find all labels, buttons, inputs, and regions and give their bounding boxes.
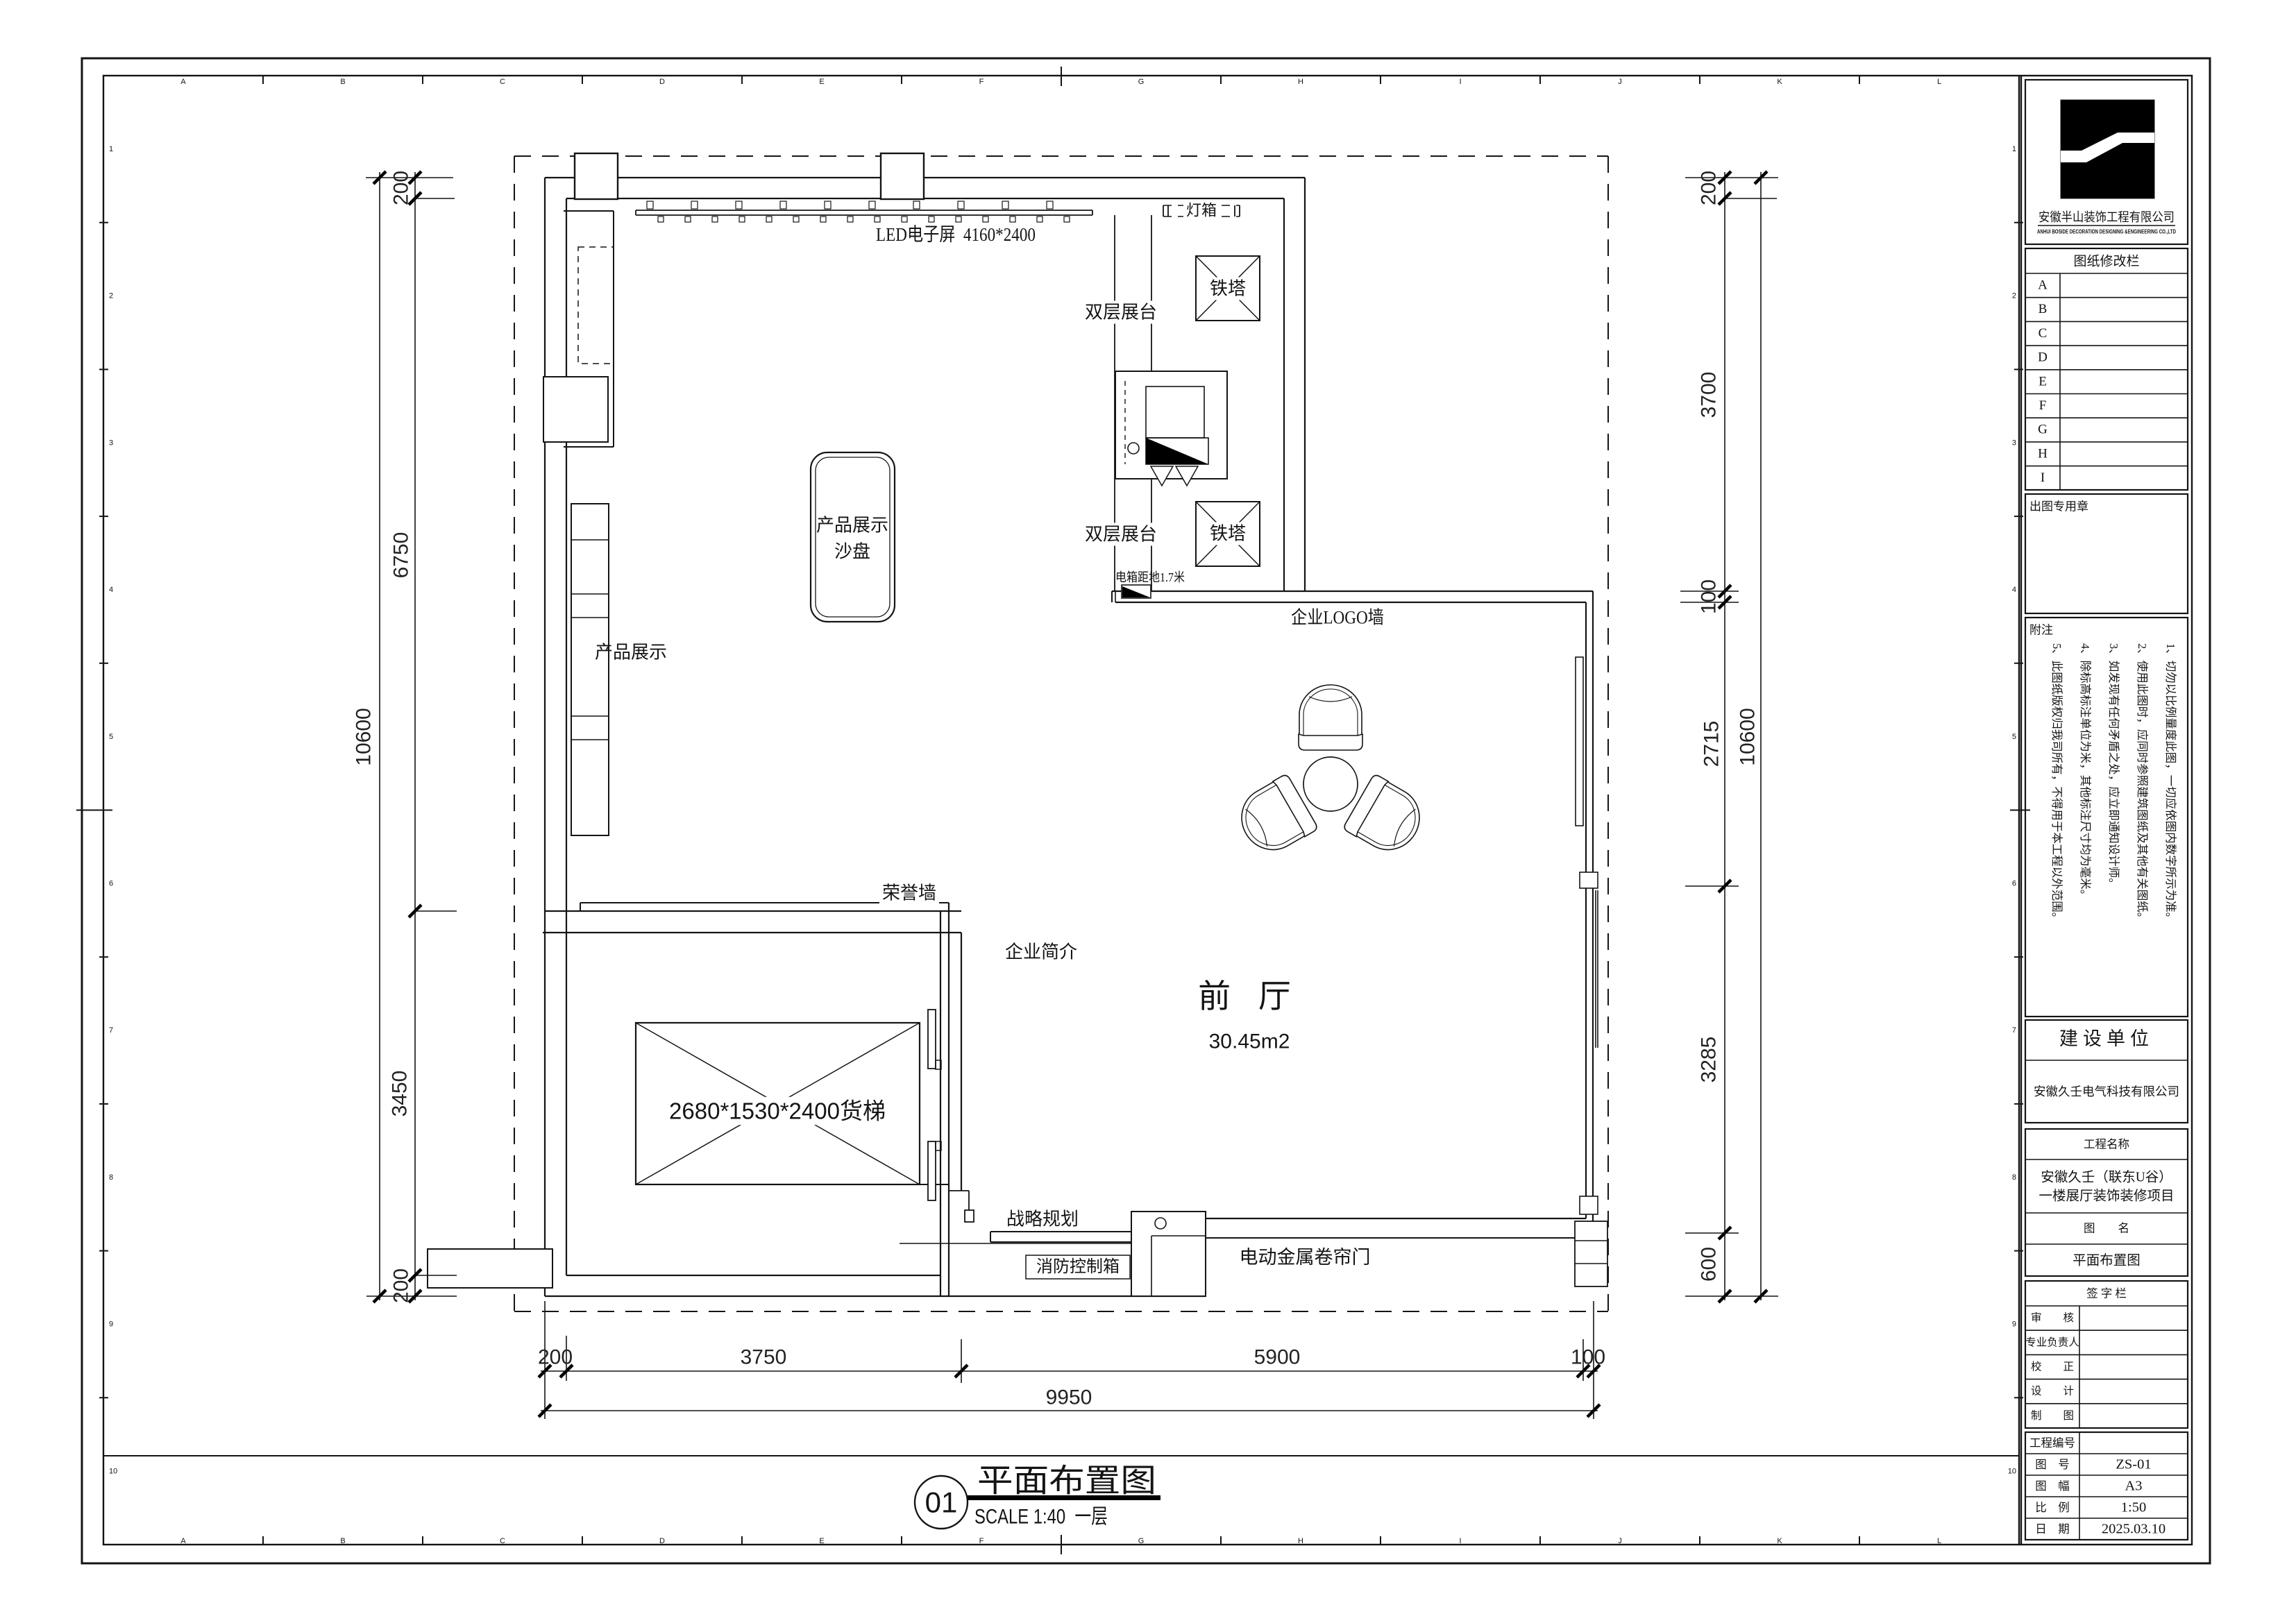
svg-text:签 字 栏: 签 字 栏 [2086,1287,2127,1300]
svg-text:F: F [979,78,984,86]
svg-text:C: C [500,78,505,86]
svg-text:H: H [1298,78,1303,86]
svg-text:平面布置图: 平面布置图 [977,1463,1156,1499]
svg-text:7: 7 [109,1026,113,1035]
svg-text:比 例: 比 例 [2035,1501,2070,1514]
svg-text:图 号: 图 号 [2035,1458,2070,1471]
svg-text:200: 200 [538,1346,573,1369]
svg-text:消防控制箱: 消防控制箱 [1036,1257,1120,1276]
svg-text:F: F [2039,398,2047,413]
svg-text:前 厅: 前 厅 [1198,979,1301,1015]
svg-text:A3: A3 [2125,1479,2142,1494]
svg-text:K: K [1777,78,1782,86]
svg-text:3: 3 [2012,439,2016,447]
svg-text:产品展示: 产品展示 [595,643,667,663]
svg-text:3285: 3285 [1698,1037,1721,1083]
svg-text:6: 6 [109,880,113,888]
svg-text:J: J [1618,1537,1622,1545]
svg-text:6750: 6750 [390,532,413,579]
svg-text:建设单位: 建设单位 [2059,1028,2154,1049]
svg-text:企业简介: 企业简介 [1005,942,1077,962]
svg-text:1、切勿以比例量度此图，一切应依图内数字所示为准。: 1、切勿以比例量度此图，一切应依图内数字所示为准。 [2164,643,2177,924]
svg-text:A: A [180,1537,186,1545]
svg-text:ANHUI BOSIDE DECORATION DESIGN: ANHUI BOSIDE DECORATION DESIGNING &ENGIN… [2037,229,2176,235]
svg-text:安徽久壬电气科技有限公司: 安徽久壬电气科技有限公司 [2034,1085,2179,1098]
svg-text:E: E [819,78,824,86]
svg-text:专业负责人: 专业负责人 [2025,1336,2079,1348]
svg-text:校 正: 校 正 [2031,1361,2074,1373]
svg-text:图 名: 图 名 [2084,1222,2129,1235]
svg-text:2: 2 [2012,292,2016,300]
svg-text:1: 1 [2012,145,2016,153]
svg-text:200: 200 [1698,171,1721,205]
svg-text:B: B [340,78,345,86]
svg-text:200: 200 [390,1268,413,1303]
svg-text:F: F [979,1537,984,1545]
svg-text:审 核: 审 核 [2031,1311,2074,1324]
svg-text:J: J [1618,78,1622,86]
svg-text:安徽久壬（联东U谷）: 安徽久壬（联东U谷） [2041,1170,2172,1185]
svg-text:双层展台: 双层展台 [1085,525,1157,545]
svg-text:出图专用章: 出图专用章 [2029,500,2088,513]
svg-text:01: 01 [925,1486,958,1519]
svg-text:K: K [1777,1537,1782,1545]
svg-text:电动金属卷帘门: 电动金属卷帘门 [1240,1247,1371,1268]
svg-text:2、使用此图时，应同时参照建筑图纸及其他有关图纸。: 2、使用此图时，应同时参照建筑图纸及其他有关图纸。 [2136,643,2149,924]
svg-text:ZS-01: ZS-01 [2116,1457,2151,1472]
svg-text:4: 4 [109,586,113,594]
svg-text:L: L [1937,1537,1941,1545]
svg-text:制 图: 制 图 [2031,1409,2074,1422]
svg-text:6: 6 [2012,880,2016,888]
svg-text:G: G [1138,1537,1145,1545]
svg-text:200: 200 [390,171,413,205]
svg-text:双层展台: 双层展台 [1085,303,1157,323]
svg-text:C: C [500,1537,505,1545]
svg-text:A: A [180,78,186,86]
svg-text:E: E [819,1537,824,1545]
svg-text:10: 10 [109,1467,117,1475]
svg-text:5: 5 [109,733,113,741]
svg-text:工程名称: 工程名称 [2084,1138,2129,1151]
svg-text:安徽半山装饰工程有限公司: 安徽半山装饰工程有限公司 [2038,210,2175,224]
svg-text:一楼展厅装饰装修项目: 一楼展厅装饰装修项目 [2038,1189,2174,1204]
svg-text:L: L [1937,78,1941,86]
svg-text:H: H [1298,1537,1303,1545]
svg-text:9950: 9950 [1046,1386,1092,1409]
svg-text:图 幅: 图 幅 [2035,1479,2070,1493]
svg-text:10600: 10600 [353,708,375,765]
svg-text:战略规划: 战略规划 [1006,1209,1079,1230]
svg-text:3450: 3450 [389,1071,412,1117]
svg-text:5900: 5900 [1254,1346,1301,1369]
svg-text:平面布置图: 平面布置图 [2073,1253,2141,1268]
svg-text:G: G [1138,78,1145,86]
svg-text:G: G [2038,423,2048,437]
svg-text:LED电子屏 4160*2400: LED电子屏 4160*2400 [876,224,1036,245]
svg-text:30.45m2: 30.45m2 [1209,1030,1290,1053]
svg-text:5、此图纸版权归我司所有，不得用于本工程以外范围。: 5、此图纸版权归我司所有，不得用于本工程以外范围。 [2050,643,2063,924]
svg-text:图纸修改栏: 图纸修改栏 [2073,254,2139,269]
svg-text:4、除标高标注单位为米，其他标注尺寸均为毫米。: 4、除标高标注单位为米，其他标注尺寸均为毫米。 [2079,643,2092,901]
svg-text:100: 100 [1698,579,1721,614]
svg-text:3: 3 [109,439,113,447]
svg-text:3700: 3700 [1698,372,1721,418]
svg-text:5: 5 [2012,733,2016,741]
svg-text:9: 9 [109,1320,113,1329]
svg-text:荣誉墙: 荣誉墙 [882,883,936,903]
svg-text:2715: 2715 [1700,721,1723,767]
svg-text:10600: 10600 [1737,708,1759,765]
svg-text:I: I [1459,1537,1461,1545]
svg-text:灯箱: 灯箱 [1186,202,1217,219]
svg-text:附注: 附注 [2029,624,2053,637]
svg-text:日 期: 日 期 [2035,1522,2070,1536]
svg-text:2680*1530*2400货梯: 2680*1530*2400货梯 [669,1098,886,1124]
svg-text:H: H [2038,446,2048,461]
svg-text:铁塔: 铁塔 [1210,524,1246,544]
svg-text:C: C [2038,326,2048,341]
svg-text:1: 1 [109,145,113,153]
svg-text:9: 9 [2012,1320,2016,1329]
svg-text:7: 7 [2012,1026,2016,1035]
svg-text:B: B [340,1537,345,1545]
svg-text:设 计: 设 计 [2031,1385,2074,1397]
svg-text:企业LOGO墙: 企业LOGO墙 [1291,608,1384,628]
svg-text:I: I [2041,470,2045,485]
svg-text:100: 100 [1571,1346,1605,1369]
svg-text:铁塔: 铁塔 [1210,279,1246,299]
svg-text:B: B [2038,302,2048,316]
svg-text:SCALE 1:40 一层: SCALE 1:40 一层 [974,1506,1108,1529]
svg-text:2025.03.10: 2025.03.10 [2102,1522,2166,1537]
svg-text:10: 10 [2008,1467,2016,1475]
svg-text:D: D [659,78,665,86]
svg-text:8: 8 [2012,1173,2016,1182]
svg-text:3750: 3750 [741,1346,787,1369]
svg-text:产品展示: 产品展示 [816,516,888,536]
svg-text:1:50: 1:50 [2121,1500,2146,1515]
svg-text:D: D [2038,350,2048,365]
svg-text:I: I [1459,78,1461,86]
svg-text:电箱距地1.7米: 电箱距地1.7米 [1115,570,1185,584]
svg-text:A: A [2038,278,2048,293]
svg-text:E: E [2038,374,2047,389]
svg-text:3、如发现有任何矛盾之处，应立即通知设计师。: 3、如发现有任何矛盾之处，应立即通知设计师。 [2107,643,2120,890]
svg-text:2: 2 [109,292,113,300]
svg-text:沙盘: 沙盘 [834,542,870,562]
svg-text:600: 600 [1698,1247,1721,1282]
svg-text:8: 8 [109,1173,113,1182]
svg-text:D: D [659,1537,665,1545]
svg-text:工程编号: 工程编号 [2029,1436,2075,1450]
svg-text:4: 4 [2012,586,2016,594]
